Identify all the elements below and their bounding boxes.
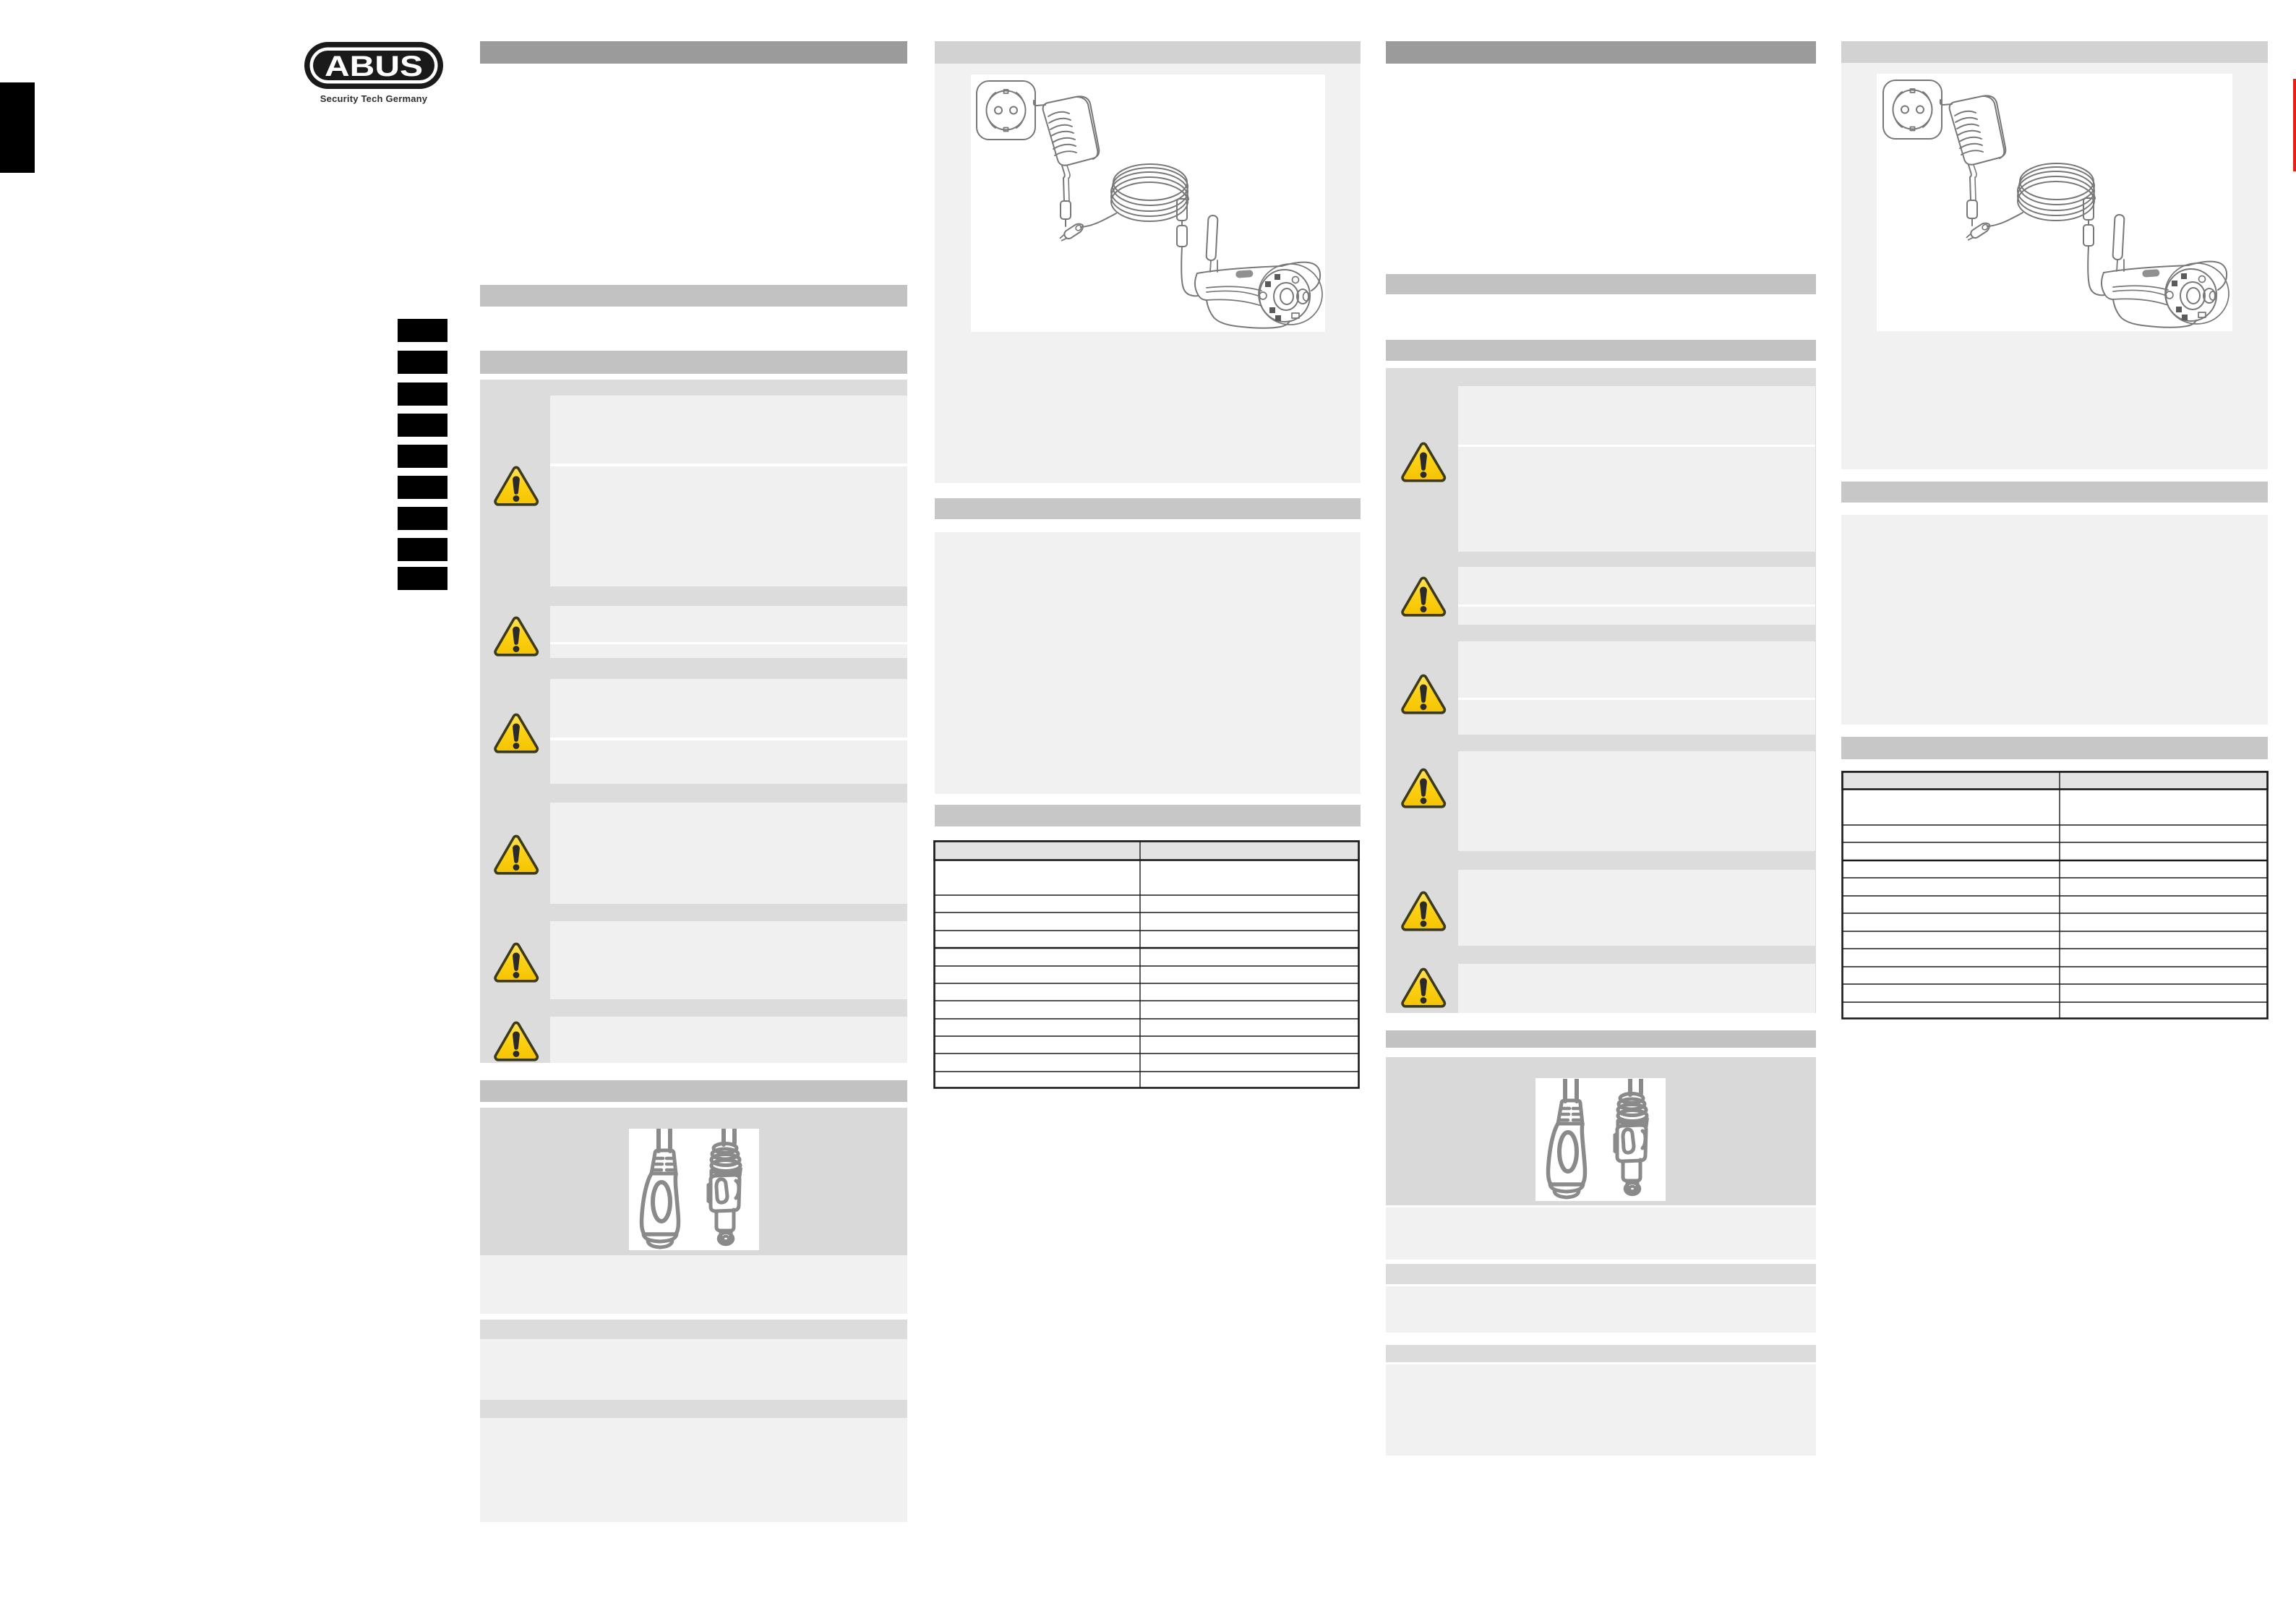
svg-text:ABUS: ABUS (325, 51, 423, 82)
